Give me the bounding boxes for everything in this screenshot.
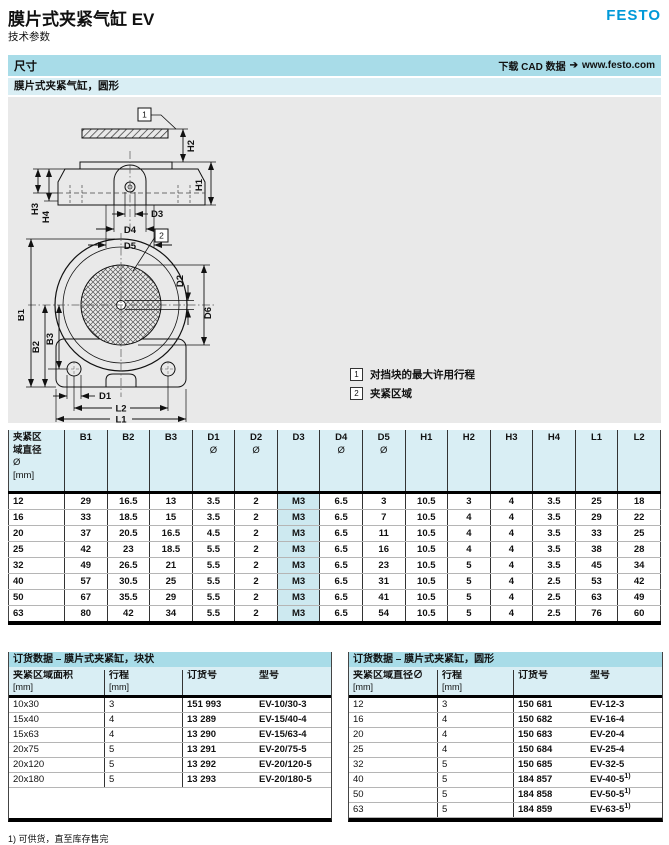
table-cell: 2 <box>235 542 278 558</box>
table-row: 164150 682EV-16-4 <box>349 713 662 728</box>
table-row: 638042345.52M36.55410.5542.57660 <box>9 606 661 624</box>
table-row: 405184 857EV-40-51) <box>349 773 662 788</box>
table-row: 20x120513 292EV-20/120-5 <box>9 758 331 773</box>
table-cell: 4 <box>490 590 533 606</box>
table-cell: 2.5 <box>533 574 576 590</box>
table-cell: M3 <box>277 510 320 526</box>
table-cell: 4 <box>104 713 182 727</box>
table-cell: 4 <box>437 743 513 757</box>
table-cell: 63 <box>9 606 65 624</box>
table-cell: 3 <box>362 493 405 510</box>
dim-table-body: 122916.5133.52M36.5310.5343.52518163318.… <box>9 493 661 624</box>
table-cell: 13 293 <box>182 773 255 787</box>
dim-table-header-row: 夹紧区域直径Ø[mm]B1B2B3D1ØD2ØD3D4ØD5ØH1H2H3H4L… <box>9 430 661 493</box>
column-header: B1 <box>65 430 108 493</box>
table-cell: 2 <box>235 510 278 526</box>
table-cell: EV-20/120-5 <box>255 758 331 772</box>
table-cell: 4 <box>104 728 182 742</box>
table-cell: EV-20/180-5 <box>255 773 331 787</box>
table-cell: 6.5 <box>320 526 363 542</box>
table-cell: 3.5 <box>533 526 576 542</box>
table-cell: 6.5 <box>320 510 363 526</box>
table-cell: M3 <box>277 558 320 574</box>
table-cell: 4 <box>448 510 491 526</box>
table-cell: 33 <box>65 510 108 526</box>
table-cell: EV-16-4 <box>586 713 662 727</box>
table-cell: 5.5 <box>192 574 235 590</box>
column-header: 行程[mm] <box>104 670 182 695</box>
table-cell: 42 <box>618 574 661 590</box>
column-header: 型号 <box>255 670 331 695</box>
table-cell: 25 <box>9 542 65 558</box>
table-cell: 63 <box>349 803 437 817</box>
table-cell: 4 <box>490 574 533 590</box>
table-row: 203720.516.54.52M36.51110.5443.53325 <box>9 526 661 542</box>
table-cell: 13 291 <box>182 743 255 757</box>
table-cell: 15x63 <box>9 728 104 742</box>
table-cell: 2 <box>235 493 278 510</box>
table-cell: 3 <box>437 698 513 712</box>
table-row: 15x40413 289EV-15/40-4 <box>9 713 331 728</box>
order-table-header: 夹紧区域面积[mm]行程[mm]订货号型号 <box>9 667 331 695</box>
table-cell: 20x120 <box>9 758 104 772</box>
dim-label-d1: D1 <box>99 391 112 402</box>
dim-label-d3: D3 <box>151 209 163 220</box>
table-cell: 60 <box>618 606 661 624</box>
dim-table: 夹紧区域直径Ø[mm]B1B2B3D1ØD2ØD3D4ØD5ØH1H2H3H4L… <box>8 430 661 625</box>
table-cell: M3 <box>277 590 320 606</box>
table-cell: 2 <box>235 574 278 590</box>
table-cell: 150 681 <box>513 698 586 712</box>
column-header: B2 <box>107 430 150 493</box>
legend-marker-2: 2 <box>350 387 363 400</box>
table-cell: 10.5 <box>405 510 448 526</box>
table-cell: 76 <box>575 606 618 624</box>
column-header: 行程[mm] <box>437 670 513 695</box>
table-cell: 6.5 <box>320 558 363 574</box>
table-cell: 13 290 <box>182 728 255 742</box>
table-row: 405730.5255.52M36.53110.5542.55342 <box>9 574 661 590</box>
table-row: 20x180513 293EV-20/180-5 <box>9 773 331 788</box>
table-row: 123150 681EV-12-3 <box>349 698 662 713</box>
table-cell: 5 <box>448 574 491 590</box>
table-cell: M3 <box>277 542 320 558</box>
table-cell: 18 <box>618 493 661 510</box>
table-row: 25422318.55.52M36.51610.5443.53828 <box>9 542 661 558</box>
table-cell: 53 <box>575 574 618 590</box>
dim-label-h1: H1 <box>194 178 205 191</box>
table-row: 254150 684EV-25-4 <box>349 743 662 758</box>
legend-item: 2 夹紧区域 <box>350 386 475 401</box>
table-cell: EV-15/40-4 <box>255 713 331 727</box>
table-cell: 3.5 <box>533 493 576 510</box>
page-subtitle: 技术参数 <box>8 29 50 44</box>
table-cell: 2 <box>235 606 278 624</box>
table-row: 15x63413 290EV-15/63-4 <box>9 728 331 743</box>
order-table-header: 夹紧区域直径∅[mm]行程[mm]订货号型号 <box>349 667 662 695</box>
drawing-legend: 1 对挡块的最大许用行程 2 夹紧区域 <box>350 367 475 405</box>
table-cell: EV-15/63-4 <box>255 728 331 742</box>
table-cell: 2 <box>235 590 278 606</box>
column-header: L1 <box>575 430 618 493</box>
table-cell: 3.5 <box>192 493 235 510</box>
table-cell: 13 289 <box>182 713 255 727</box>
table-cell: M3 <box>277 606 320 624</box>
column-header: 夹紧区域直径Ø[mm] <box>9 430 65 493</box>
table-cell: 4 <box>490 510 533 526</box>
table-cell: 25 <box>575 493 618 510</box>
table-cell: EV-40-51) <box>586 773 662 787</box>
table-cell: EV-20/75-5 <box>255 743 331 757</box>
table-cell: 2 <box>235 526 278 542</box>
table-cell: 42 <box>107 606 150 624</box>
table-cell: 5 <box>437 788 513 802</box>
table-cell: M3 <box>277 493 320 510</box>
column-header: H1 <box>405 430 448 493</box>
table-cell: 31 <box>362 574 405 590</box>
table-cell: 3 <box>104 698 182 712</box>
table-cell: 22 <box>618 510 661 526</box>
table-cell: 184 858 <box>513 788 586 802</box>
table-cell: 50 <box>349 788 437 802</box>
marker-2: 2 <box>159 231 164 241</box>
table-cell: 5 <box>104 743 182 757</box>
legend-item: 1 对挡块的最大许用行程 <box>350 367 475 382</box>
dim-label-b3: B3 <box>45 333 56 345</box>
arrow-right-icon: ➔ <box>570 60 578 71</box>
table-cell: 16.5 <box>107 493 150 510</box>
table-cell: 184 857 <box>513 773 586 787</box>
table-cell: 16.5 <box>150 526 193 542</box>
table-cell: 6.5 <box>320 590 363 606</box>
table-cell: 5 <box>104 758 182 772</box>
table-cell: 4 <box>490 542 533 558</box>
table-cell: 4 <box>437 713 513 727</box>
table-cell: 6.5 <box>320 574 363 590</box>
table-cell: 10.5 <box>405 526 448 542</box>
column-header: B3 <box>150 430 193 493</box>
table-cell: 10.5 <box>405 590 448 606</box>
table-cell: 38 <box>575 542 618 558</box>
table-cell: 26.5 <box>107 558 150 574</box>
table-cell: M3 <box>277 526 320 542</box>
top-view-drawing: 2 B1 B2 B3 D2 D6 D1 L2 <box>18 227 233 423</box>
table-cell: 15x40 <box>9 713 104 727</box>
table-cell: EV-20-4 <box>586 728 662 742</box>
table-cell: 10.5 <box>405 606 448 624</box>
table-cell: 32 <box>9 558 65 574</box>
column-header: 夹紧区域面积[mm] <box>9 670 104 695</box>
table-cell: 150 682 <box>513 713 586 727</box>
table-cell: 20.5 <box>107 526 150 542</box>
table-cell: 18.5 <box>150 542 193 558</box>
table-cell: EV-63-51) <box>586 803 662 817</box>
table-cell: 20x75 <box>9 743 104 757</box>
table-cell: 41 <box>362 590 405 606</box>
cad-link-url: www.festo.com <box>582 60 655 71</box>
dim-label-l2: L2 <box>115 404 126 415</box>
table-row: 163318.5153.52M36.5710.5443.52922 <box>9 510 661 526</box>
table-cell: 32 <box>349 758 437 772</box>
table-row: 506735.5295.52M36.54110.5542.56349 <box>9 590 661 606</box>
cylinder-body <box>58 169 205 205</box>
table-cell: 25 <box>349 743 437 757</box>
table-cell: 10.5 <box>405 542 448 558</box>
workpiece-bar <box>82 129 168 138</box>
table-cell: 57 <box>65 574 108 590</box>
table-cell: 50 <box>9 590 65 606</box>
table-cell: 23 <box>107 542 150 558</box>
section-title: 尺寸 <box>14 58 37 74</box>
table-cell: 13 292 <box>182 758 255 772</box>
table-row: 20x75513 291EV-20/75-5 <box>9 743 331 758</box>
table-cell: 29 <box>150 590 193 606</box>
table-row: 204150 683EV-20-4 <box>349 728 662 743</box>
dim-label-h2: H2 <box>186 140 197 152</box>
table-cell: 30.5 <box>107 574 150 590</box>
table-cell: 2.5 <box>533 606 576 624</box>
table-cell: 150 683 <box>513 728 586 742</box>
cad-link-label: 下载 CAD 数据 <box>498 58 565 73</box>
legend-text-2: 夹紧区域 <box>370 386 412 401</box>
table-cell: 21 <box>150 558 193 574</box>
legend-marker-1: 1 <box>350 368 363 381</box>
table-cell: 150 685 <box>513 758 586 772</box>
table-cell: 5 <box>437 803 513 817</box>
table-cell: 25 <box>150 574 193 590</box>
table-cell: 49 <box>618 590 661 606</box>
table-cell: 28 <box>618 542 661 558</box>
table-cell: 40 <box>349 773 437 787</box>
column-header: D3 <box>277 430 320 493</box>
table-cell: 3.5 <box>192 510 235 526</box>
table-cell: 6.5 <box>320 542 363 558</box>
table-row: 122916.5133.52M36.5310.5343.52518 <box>9 493 661 510</box>
table-cell: 29 <box>65 493 108 510</box>
table-cell: 5 <box>104 773 182 787</box>
column-header: L2 <box>618 430 661 493</box>
table-cell: 20 <box>349 728 437 742</box>
table-cell: EV-10/30-3 <box>255 698 331 712</box>
table-cell: 4 <box>490 558 533 574</box>
order-table-left: 订货数据 – 膜片式夹紧缸，块状 夹紧区域面积[mm]行程[mm]订货号型号 1… <box>8 652 332 822</box>
table-cell: 4 <box>437 728 513 742</box>
table-cell: 35.5 <box>107 590 150 606</box>
dim-label-h4: H4 <box>41 210 52 223</box>
table-cell: 10.5 <box>405 493 448 510</box>
table-cell: 3.5 <box>533 542 576 558</box>
column-header: D5Ø <box>362 430 405 493</box>
table-cell: 6.5 <box>320 493 363 510</box>
table-cell: 5 <box>448 558 491 574</box>
table-cell: EV-50-51) <box>586 788 662 802</box>
table-cell: 18.5 <box>107 510 150 526</box>
table-row: 324926.5215.52M36.52310.5543.54534 <box>9 558 661 574</box>
table-cell: 6.5 <box>320 606 363 624</box>
table-cell: 13 <box>150 493 193 510</box>
dim-label-h3: H3 <box>30 203 41 215</box>
section-bar: 尺寸 下载 CAD 数据 ➔ www.festo.com <box>8 55 661 76</box>
column-header: 订货号 <box>182 670 255 695</box>
drawing-area: 1 H2 H1 H3 H4 D <box>8 97 661 423</box>
column-header: D2Ø <box>235 430 278 493</box>
table-cell: 12 <box>349 698 437 712</box>
column-header: D1Ø <box>192 430 235 493</box>
table-cell: 34 <box>150 606 193 624</box>
table-cell: EV-12-3 <box>586 698 662 712</box>
table-cell: 49 <box>65 558 108 574</box>
table-cell: M3 <box>277 574 320 590</box>
column-header: H2 <box>448 430 491 493</box>
table-cell: 29 <box>575 510 618 526</box>
table-row: 635184 859EV-63-51) <box>349 803 662 818</box>
dim-label-b1: B1 <box>18 308 27 321</box>
table-cell: 42 <box>65 542 108 558</box>
table-cell: 12 <box>9 493 65 510</box>
dim-label-b2: B2 <box>31 341 42 353</box>
table-cell: 7 <box>362 510 405 526</box>
table-cell: EV-25-4 <box>586 743 662 757</box>
table-cell: 5.5 <box>192 590 235 606</box>
table-row: 505184 858EV-50-51) <box>349 788 662 803</box>
table-cell: 4 <box>448 542 491 558</box>
table-cell: 4 <box>448 526 491 542</box>
table-cell: 11 <box>362 526 405 542</box>
table-cell: 3.5 <box>533 510 576 526</box>
table-cell: 151 993 <box>182 698 255 712</box>
table-row: 10x303151 993EV-10/30-3 <box>9 698 331 713</box>
table-cell: 33 <box>575 526 618 542</box>
table-cell: 16 <box>9 510 65 526</box>
table-cell: 5 <box>437 758 513 772</box>
table-cell: 37 <box>65 526 108 542</box>
dim-label-d2: D2 <box>175 275 186 287</box>
column-header: H3 <box>490 430 533 493</box>
table-cell: 10x30 <box>9 698 104 712</box>
order-table-right: 订货数据 – 膜片式夹紧缸，圆形 夹紧区域直径∅[mm]行程[mm]订货号型号 … <box>348 652 663 822</box>
table-cell: 10.5 <box>405 574 448 590</box>
table-cell: 80 <box>65 606 108 624</box>
table-cell: 5.5 <box>192 558 235 574</box>
order-table-body: 10x303151 993EV-10/30-315x40413 289EV-15… <box>9 698 331 788</box>
table-cell: 5.5 <box>192 606 235 624</box>
table-cell: 4 <box>490 526 533 542</box>
table-cell: 150 684 <box>513 743 586 757</box>
table-cell: 10.5 <box>405 558 448 574</box>
table-cell: 67 <box>65 590 108 606</box>
column-header: D4Ø <box>320 430 363 493</box>
legend-text-1: 对挡块的最大许用行程 <box>370 367 475 382</box>
table-cell: 63 <box>575 590 618 606</box>
festo-logo: FESTO <box>606 7 661 24</box>
order-table-title: 订货数据 – 膜片式夹紧缸，块状 <box>9 652 331 667</box>
table-cell: 4 <box>490 606 533 624</box>
dim-label-d6: D6 <box>203 307 214 319</box>
table-cell: 5.5 <box>192 542 235 558</box>
table-cell: EV-32-5 <box>586 758 662 772</box>
table-cell: 5 <box>448 606 491 624</box>
table-cell: 5 <box>437 773 513 787</box>
table-cell: 3 <box>448 493 491 510</box>
column-header: 夹紧区域直径∅[mm] <box>349 670 437 695</box>
table-cell: 5 <box>448 590 491 606</box>
table-cell: 23 <box>362 558 405 574</box>
order-table-body: 123150 681EV-12-3164150 682EV-16-4204150… <box>349 698 662 818</box>
table-cell: 20x180 <box>9 773 104 787</box>
table-cell: 54 <box>362 606 405 624</box>
column-header: 型号 <box>586 670 662 695</box>
table-cell: 2 <box>235 558 278 574</box>
dim-label-l1: L1 <box>115 415 127 424</box>
table-cell: 4 <box>490 493 533 510</box>
table-cell: 4.5 <box>192 526 235 542</box>
table-row: 325150 685EV-32-5 <box>349 758 662 773</box>
marker-1: 1 <box>142 110 147 120</box>
table-cell: 45 <box>575 558 618 574</box>
table-cell: 16 <box>349 713 437 727</box>
table-cell: 3.5 <box>533 558 576 574</box>
table-cell: 184 859 <box>513 803 586 817</box>
table-cell: 40 <box>9 574 65 590</box>
order-table-title: 订货数据 – 膜片式夹紧缸，圆形 <box>349 652 662 667</box>
table-cell: 25 <box>618 526 661 542</box>
table-cell: 16 <box>362 542 405 558</box>
subsection-bar: 膜片式夹紧气缸，圆形 <box>8 78 661 95</box>
column-header: H4 <box>533 430 576 493</box>
table-cell: 20 <box>9 526 65 542</box>
table-cell: 2.5 <box>533 590 576 606</box>
table-cell: 34 <box>618 558 661 574</box>
column-header: 订货号 <box>513 670 586 695</box>
table-cell: 15 <box>150 510 193 526</box>
page-title: 膜片式夹紧气缸 EV <box>8 5 154 30</box>
cad-download-link[interactable]: 下载 CAD 数据 ➔ www.festo.com <box>498 58 655 73</box>
